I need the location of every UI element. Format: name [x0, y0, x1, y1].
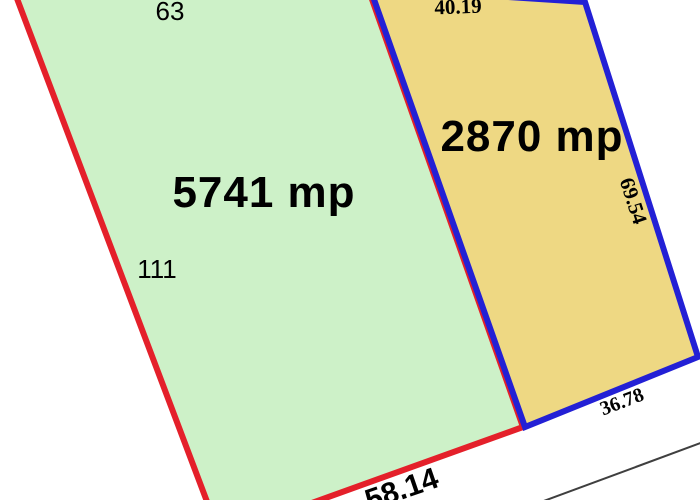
dimension-label-green-left: 111: [137, 256, 177, 282]
yellow-parcel-area-label: 2870 mp: [440, 115, 623, 159]
dimension-label-green-top: 63: [156, 0, 185, 24]
parcel-map: [0, 0, 700, 500]
green-parcel-area-label: 5741 mp: [172, 171, 355, 215]
dimension-label-yellow-top: 40.19: [434, 0, 482, 18]
road-edge-line: [541, 441, 700, 500]
land-survey-diagram: 5741 mp 2870 mp 63 111 58.14 40.19 69.54…: [0, 0, 700, 500]
